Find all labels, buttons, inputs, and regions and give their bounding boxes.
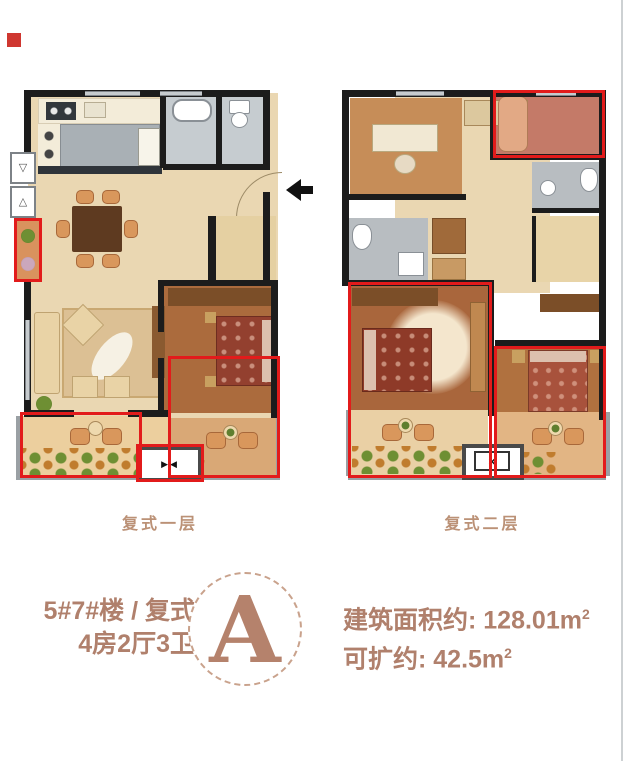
dining-chair [102,190,120,204]
area-superscript: 2 [582,606,590,622]
sink-icon [540,180,556,196]
toilet-icon [352,224,372,250]
nightstand [205,312,216,323]
desk [372,124,438,152]
dining-chair [76,254,94,268]
fridge-icon [138,128,160,166]
elevator-shaft: △ [10,186,36,218]
red-marker [7,33,21,47]
building-line: 5#7#楼 / 复式 [10,595,195,628]
stove-icon [46,102,76,120]
highlight-elevator [136,444,204,482]
rooms-line: 4房2厅3卫 [10,628,195,661]
cooktop-counter [38,124,60,168]
toilet-bowl-icon [231,112,248,128]
window [25,320,30,400]
shelf [432,258,466,280]
floorplan-poster: ▶◀ ▽ △ [0,0,625,761]
highlight-bedroom2 [494,346,606,478]
highlight-master-suite [348,282,492,478]
armchair [72,376,98,398]
outer-wall [263,90,270,170]
wardrobe [540,294,602,312]
plan-label-level1: 复式一层 [10,510,310,534]
bath-bottom-wall [163,164,267,170]
dining-chair [56,220,70,238]
expand-line: 可扩约: 42.5m2 [343,637,618,676]
highlight-balcony [20,412,142,478]
shaft-up-icon: △ [19,196,27,208]
sink-icon [84,102,106,118]
desk-chair [394,154,416,174]
wardrobe [168,288,276,306]
dining-chair [102,254,120,268]
arrow-left-icon [286,179,314,201]
outer-wall [24,90,270,97]
window [160,91,202,96]
armchair [104,376,130,398]
arrow-head [286,179,301,201]
inner-wall [532,208,606,213]
balcony-outer-wall [606,412,610,476]
window [85,91,140,96]
outer-wall [342,90,349,282]
dining-chair [76,190,94,204]
sofa [34,312,60,394]
counter-dark-band [38,166,162,174]
area-line: 建筑面积约: 128.01m2 [343,598,618,637]
elevator-shaft: ▽ [10,152,36,184]
vanity-icon [398,252,424,276]
floorplan-level2: × [340,90,625,488]
shaft-down-icon: ▽ [19,162,27,174]
bedroom-left-wall [158,280,164,332]
staircase [532,216,600,282]
arrow-shaft [300,186,313,194]
highlighted-plant-box [14,218,42,282]
bathtub-icon [172,99,212,122]
toilet-icon [580,168,598,192]
window [396,91,444,96]
plant-icon [21,229,35,243]
unit-letter: A [190,574,300,686]
dining-table [72,206,122,252]
bath-divider-wall [216,94,222,166]
expand-superscript: 2 [504,645,512,661]
flower-icon [21,257,35,271]
highlight-room-top [493,90,605,158]
area-info: 建筑面积约: 128.01m2 可扩约: 42.5m2 [343,598,618,677]
unit-summary: 5#7#楼 / 复式 4房2厅3卫 [10,595,195,661]
outer-wall [263,192,270,282]
inner-wall [160,94,166,168]
bedroom-top-wall [158,280,278,286]
plan-label-level2: 复式二层 [340,510,625,534]
closet [432,218,466,254]
inner-wall [342,194,466,200]
dining-chair [124,220,138,238]
outer-wall [24,90,31,154]
floorplan-level1: ▶◀ ▽ △ [10,90,310,488]
unit-letter-badge: A [188,572,302,686]
bedroom-left-wall [158,358,164,416]
stair-wall [208,216,212,282]
